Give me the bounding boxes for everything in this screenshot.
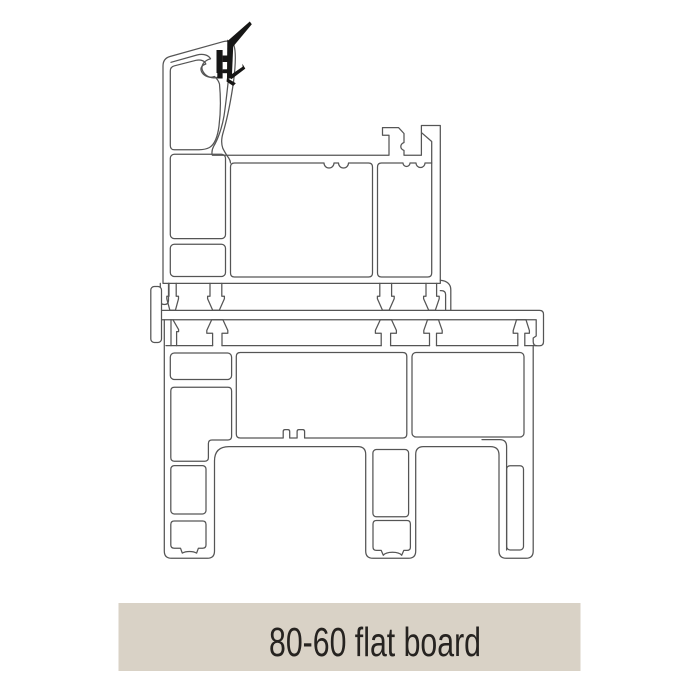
svg-text:80-60 flat board: 80-60 flat board — [269, 619, 481, 665]
